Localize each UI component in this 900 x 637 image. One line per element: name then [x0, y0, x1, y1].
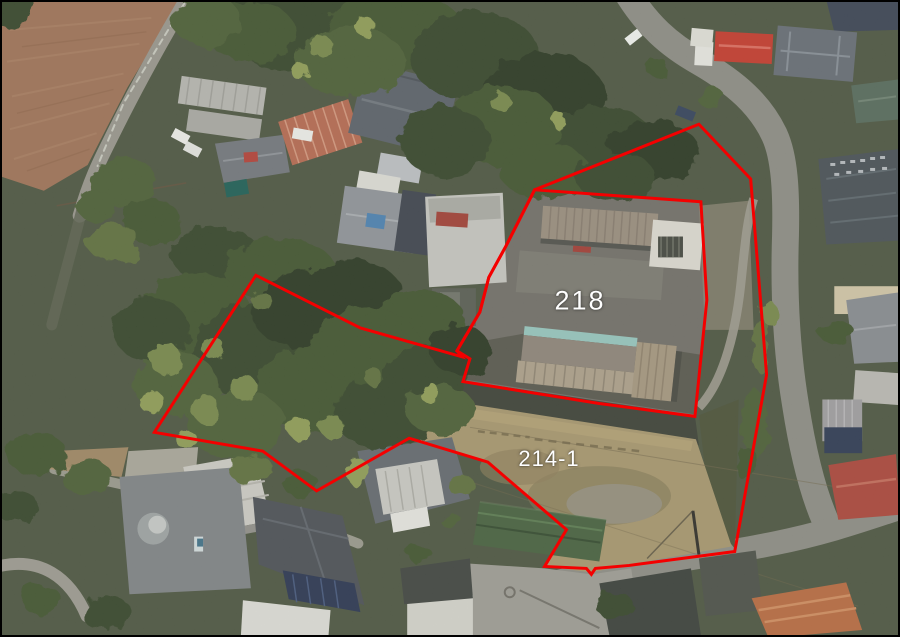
aerial-photo	[2, 2, 898, 635]
photo-grain	[2, 2, 898, 635]
aerial-map-view: 218 214-1	[0, 0, 900, 637]
